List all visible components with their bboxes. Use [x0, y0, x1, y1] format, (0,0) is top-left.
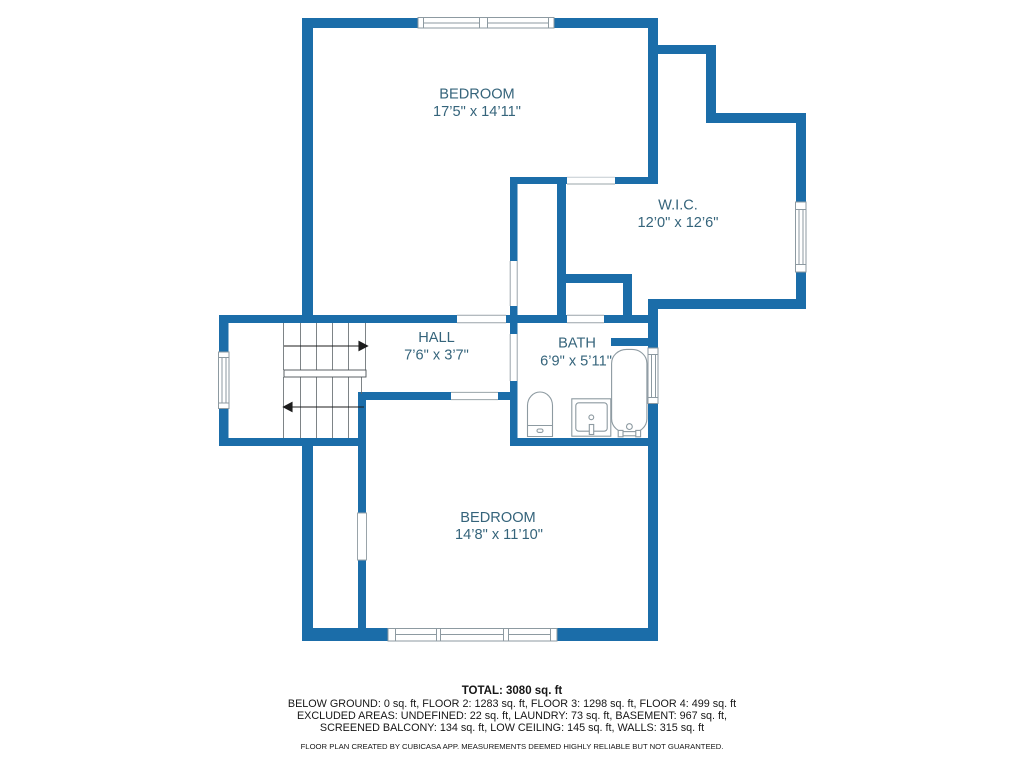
svg-text:12’0" x 12’6": 12’0" x 12’6"	[638, 215, 719, 231]
svg-text:14’8" x 11’10": 14’8" x 11’10"	[455, 527, 543, 543]
svg-text:BATH: BATH	[558, 336, 596, 352]
svg-text:BEDROOM: BEDROOM	[460, 510, 535, 526]
svg-text:BEDROOM: BEDROOM	[439, 87, 514, 103]
svg-text:W.I.C.: W.I.C.	[658, 198, 698, 214]
svg-text:6’9" x 5’11": 6’9" x 5’11"	[540, 354, 612, 370]
svg-text:7’6" x 3’7": 7’6" x 3’7"	[404, 348, 469, 364]
svg-text:17’5" x 14’11": 17’5" x 14’11"	[433, 104, 521, 120]
svg-text:HALL: HALL	[418, 330, 455, 346]
